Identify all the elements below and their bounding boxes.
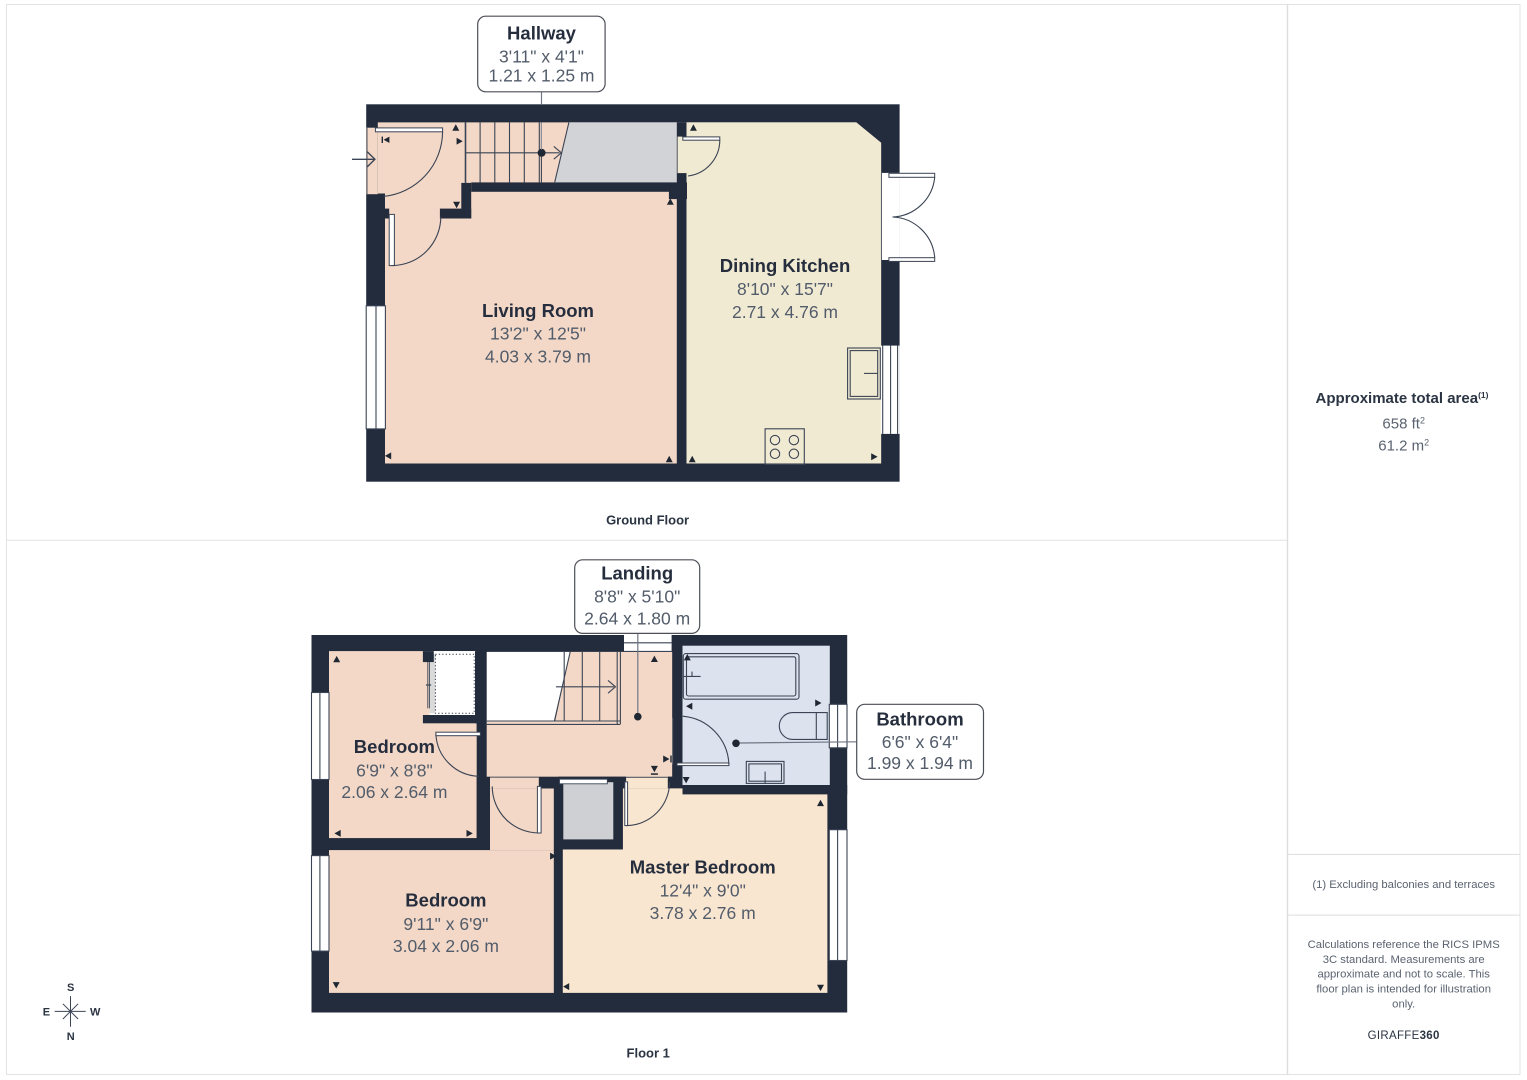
svg-text:1.99 x 1.94 m: 1.99 x 1.94 m: [867, 753, 973, 773]
svg-text:61.2 m2: 61.2 m2: [1378, 438, 1429, 455]
svg-text:Living Room: Living Room: [482, 300, 594, 321]
svg-text:Bathroom: Bathroom: [876, 709, 963, 730]
svg-text:only.: only.: [1392, 998, 1415, 1010]
svg-text:13'2" x 12'5": 13'2" x 12'5": [490, 324, 586, 344]
svg-text:E: E: [43, 1007, 50, 1019]
svg-text:4.03 x 3.79 m: 4.03 x 3.79 m: [485, 347, 591, 367]
svg-text:2.71 x 4.76 m: 2.71 x 4.76 m: [732, 302, 838, 322]
svg-text:(1) Excluding balconies and te: (1) Excluding balconies and terraces: [1312, 879, 1495, 891]
svg-text:Floor 1: Floor 1: [627, 1046, 670, 1061]
svg-text:Landing: Landing: [601, 563, 673, 584]
svg-text:approximate and not to scale.: approximate and not to scale. This: [1317, 969, 1490, 981]
svg-text:Bedroom: Bedroom: [405, 890, 486, 911]
svg-text:12'4" x 9'0": 12'4" x 9'0": [660, 881, 746, 901]
svg-text:Bedroom: Bedroom: [354, 736, 435, 757]
svg-text:8'8" x 5'10": 8'8" x 5'10": [594, 587, 680, 607]
svg-text:Master Bedroom: Master Bedroom: [630, 857, 776, 878]
svg-text:floor plan is intended for ill: floor plan is intended for illustration: [1316, 984, 1491, 996]
svg-text:N: N: [67, 1031, 75, 1043]
svg-text:3.04 x 2.06 m: 3.04 x 2.06 m: [393, 936, 499, 956]
svg-text:Ground Floor: Ground Floor: [606, 512, 689, 527]
svg-text:6'9" x 8'8": 6'9" x 8'8": [356, 761, 433, 781]
svg-text:GIRAFFE360: GIRAFFE360: [1368, 1030, 1440, 1042]
svg-text:6'6" x 6'4": 6'6" x 6'4": [882, 732, 959, 752]
svg-text:9'11" x 6'9": 9'11" x 6'9": [403, 914, 488, 934]
svg-text:Approximate total area(1): Approximate total area(1): [1316, 390, 1489, 407]
svg-text:S: S: [67, 982, 74, 994]
svg-text:W: W: [90, 1007, 101, 1019]
svg-text:3'11" x 4'1": 3'11" x 4'1": [499, 46, 584, 66]
svg-text:Calculations reference the RIC: Calculations reference the RICS IPMS: [1308, 939, 1501, 951]
svg-text:3C standard. Measurements are: 3C standard. Measurements are: [1323, 954, 1485, 966]
svg-text:3.78 x 2.76 m: 3.78 x 2.76 m: [650, 903, 756, 923]
svg-text:658 ft2: 658 ft2: [1382, 416, 1425, 433]
svg-text:2.64 x 1.80 m: 2.64 x 1.80 m: [584, 609, 690, 629]
svg-text:Dining Kitchen: Dining Kitchen: [720, 255, 851, 276]
svg-text:8'10" x 15'7": 8'10" x 15'7": [737, 279, 833, 299]
svg-text:1.21 x 1.25 m: 1.21 x 1.25 m: [488, 66, 594, 86]
svg-text:2.06 x 2.64 m: 2.06 x 2.64 m: [341, 782, 447, 802]
svg-text:Hallway: Hallway: [507, 23, 577, 44]
